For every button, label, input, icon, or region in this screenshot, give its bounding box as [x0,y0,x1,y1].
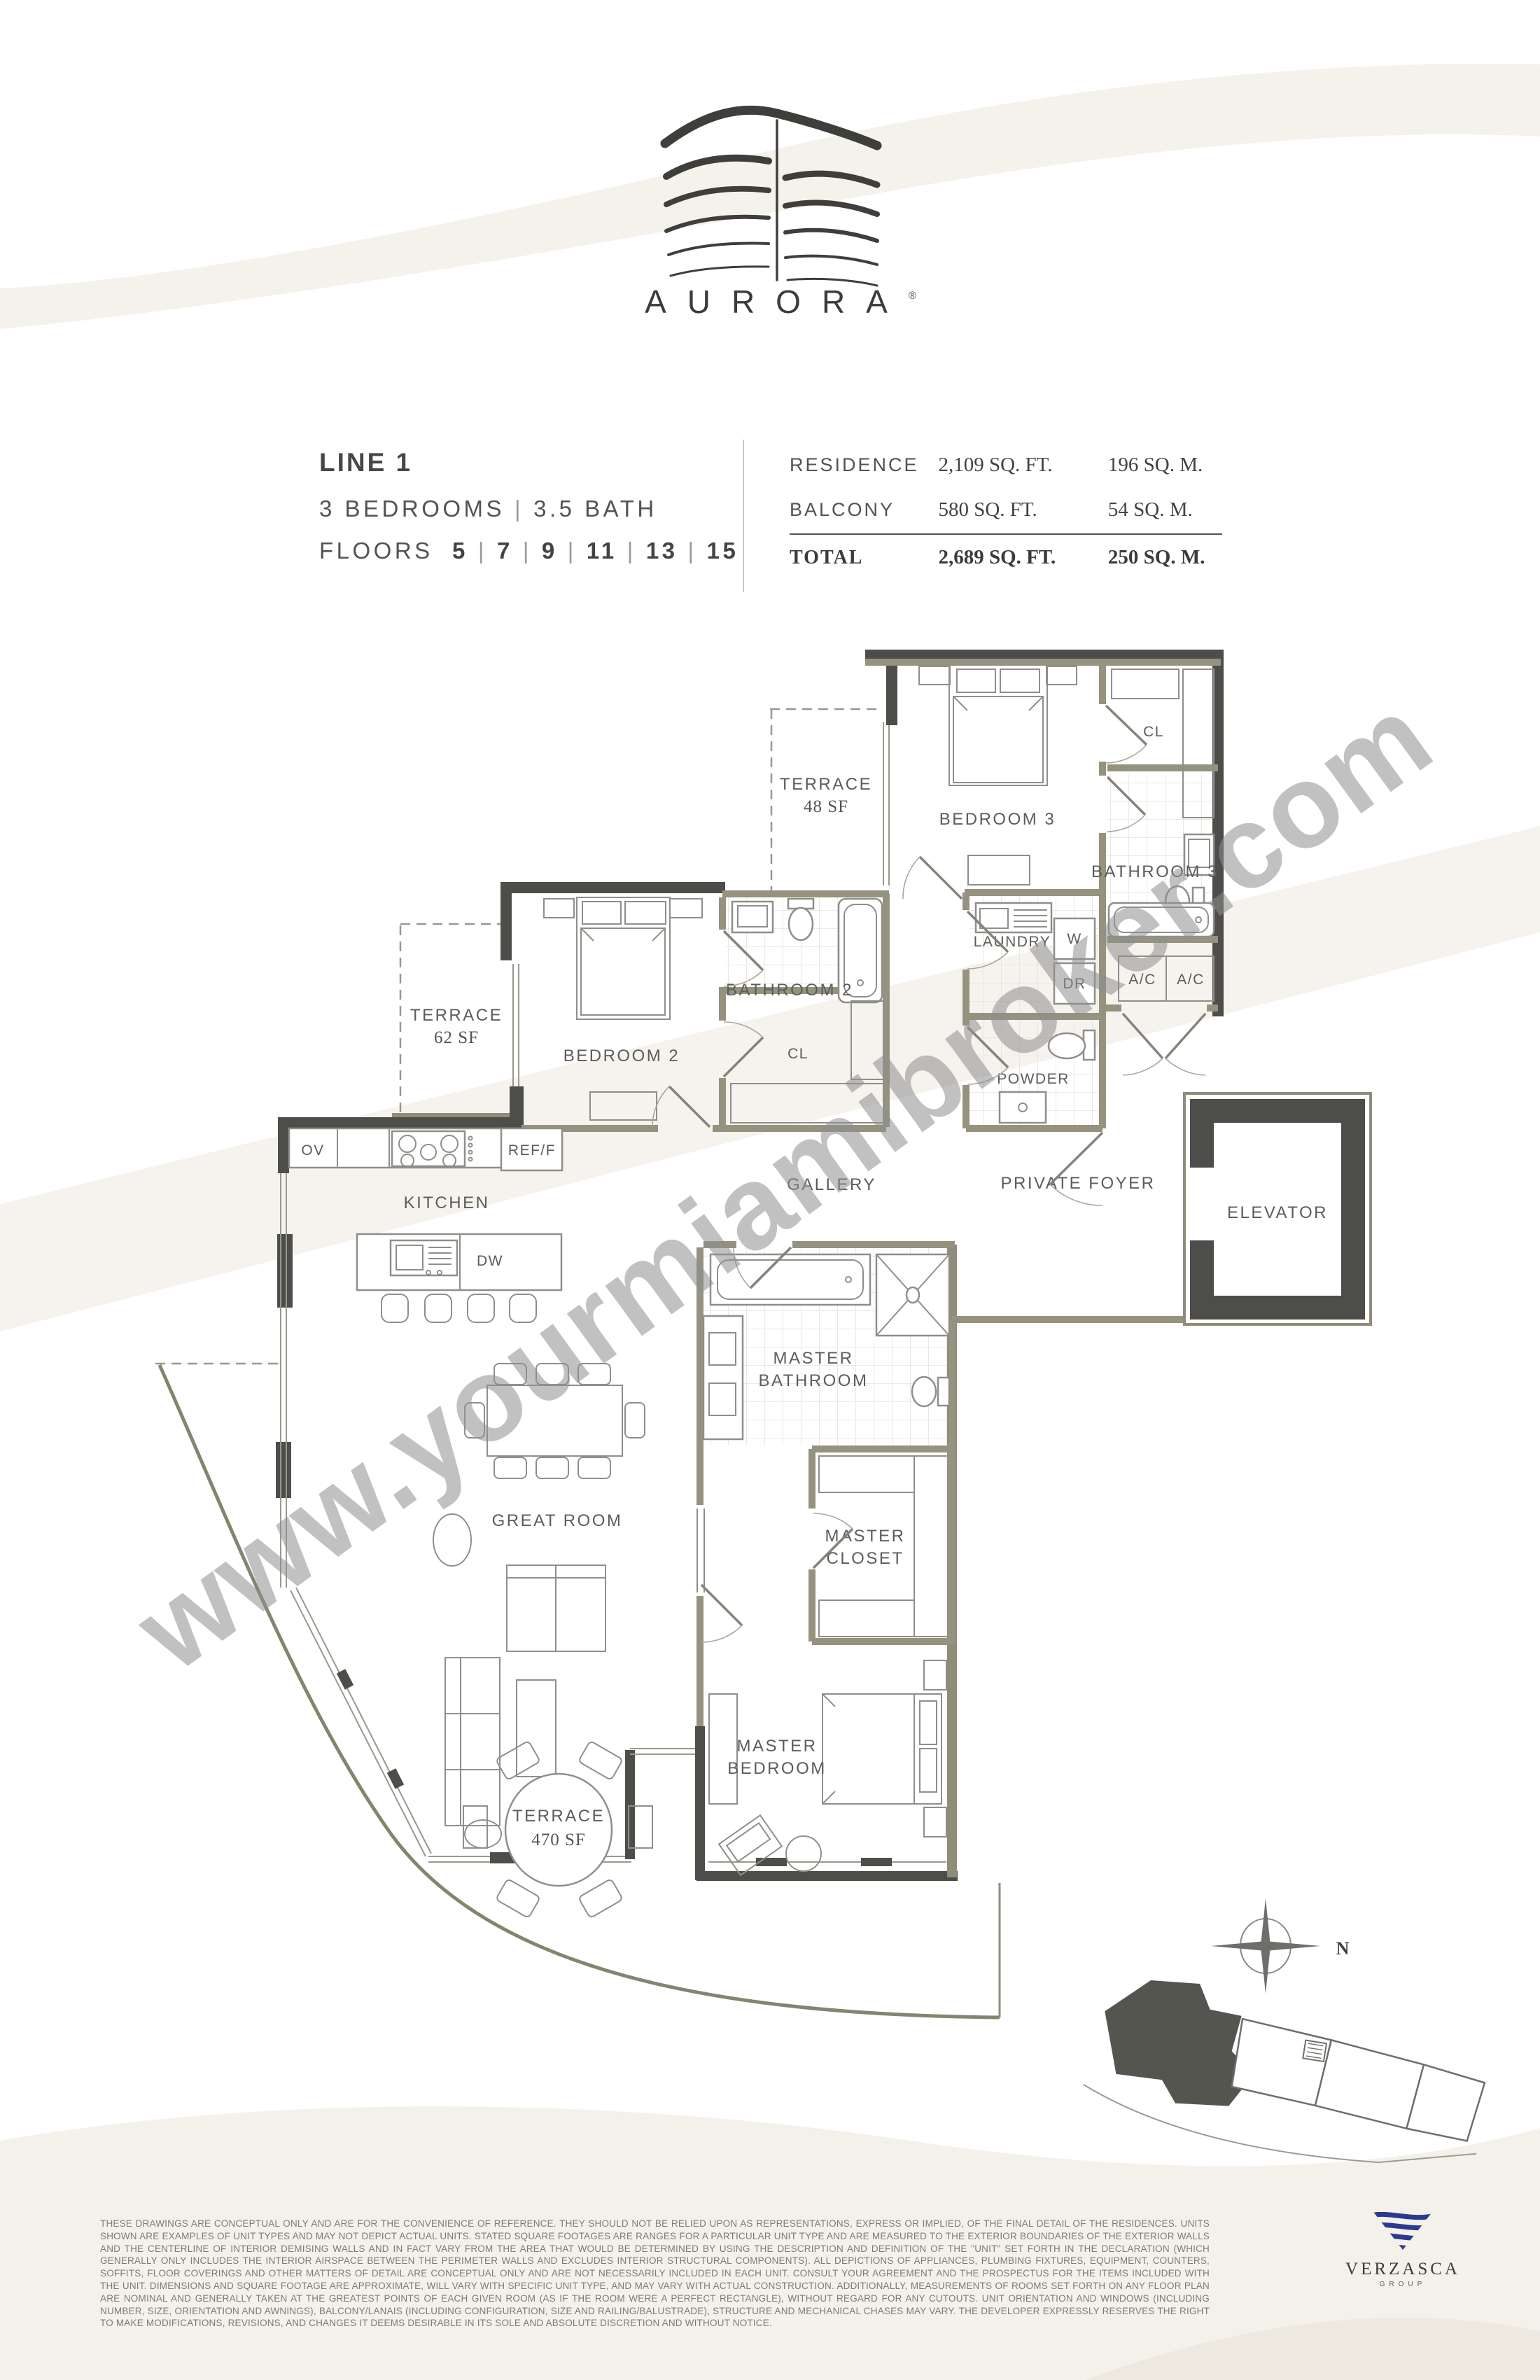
floor-number: 9 [542,538,558,563]
floors-label: FLOORS [319,538,433,563]
bathroom2-label: BATHROOM 2 [726,981,853,1000]
oven-label: OV [301,1142,324,1158]
unit-bath: 3.5 BATH [533,496,657,521]
private-foyer-label: PRIVATE FOYER [1001,1174,1156,1193]
row-sqft: 580 SQ. FT. [938,498,1105,521]
bedroom3-door-arc [903,857,920,899]
fridge-label: REF/F [508,1142,556,1158]
brand-registered-mark: ® [909,290,916,302]
terrace470-area: 470 SF [531,1830,586,1849]
floor-number: 7 [497,538,513,563]
terrace48-area: 48 SF [804,797,848,816]
room-bedroom3: BEDROOM 3 [919,665,1077,885]
terrace-48: TERRACE 48 SF [770,709,889,902]
bedroom3-label: BEDROOM 3 [939,810,1056,829]
separator: | [558,538,587,563]
row-sqft: 2,109 SQ. FT. [938,454,1105,477]
unit-line-label: LINE 1 [319,448,738,477]
floorplan-flyer-page: TERRACE 48 SF TERRACE 62 SF [0,0,1540,2380]
elevator-label: ELEVATOR [1227,1203,1328,1222]
great-room-label: GREAT ROOM [492,1511,623,1530]
master-bathroom-label-1: MASTER [773,1349,853,1368]
master-closet-label-2: CLOSET [826,1549,904,1568]
unit-floors: FLOORS 5|7|9|11|13|15 [319,538,738,564]
bedroom2-label: BEDROOM 2 [563,1046,680,1065]
row-sqm: 250 SQ. M. [1108,546,1205,569]
row-sqm: 54 SQ. M. [1108,498,1193,521]
table-row-balcony: BALCONY 580 SQ. FT. 54 SQ. M. [790,498,1193,521]
closet-top-label: CL [1143,724,1164,740]
table-row-residence: RESIDENCE 2,109 SQ. FT. 196 SQ. M. [790,454,1203,477]
row-label: TOTAL [790,547,935,569]
unit-configuration: 3 BEDROOMS|3.5 BATH [319,496,738,522]
compass-icon: N [1211,1898,1350,1994]
closet-bed2-label: CL [787,1046,808,1062]
terrace-dining-set: TERRACE 470 SF [463,1741,652,1918]
compass-north-label: N [1336,1938,1350,1959]
separator: | [513,538,542,563]
table-row-total: TOTAL 2,689 SQ. FT. 250 SQ. M. [790,546,1205,569]
floor-number: 13 [646,538,678,563]
separator: | [468,538,497,563]
brand-name: AURORA [645,283,909,320]
room-master-bedroom: MASTER BEDROOM [701,1585,946,1875]
master-bathroom-label-2: BATHROOM [759,1371,869,1390]
dishwasher-label: DW [477,1253,503,1269]
floor-number: 11 [587,538,617,563]
separator: | [505,496,533,521]
floor-number: 15 [707,538,739,563]
floor-number: 5 [452,538,468,563]
disclaimer-text: THESE DRAWINGS ARE CONCEPTUAL ONLY AND A… [100,2218,1210,2330]
room-elevator: ELEVATOR [1184,1093,1371,1324]
room-master-closet: MASTER CLOSET [813,1456,948,1637]
master-bedroom-label-1: MASTER [736,1737,817,1756]
separator: | [678,538,707,563]
keyplan-building-footprint [1078,1968,1496,2182]
kitchen-label: KITCHEN [404,1193,490,1212]
row-sqft: 2,689 SQ. FT. [938,546,1105,569]
row-label: BALCONY [790,499,935,521]
unit-bedrooms: 3 BEDROOMS [319,496,505,521]
header-divider [743,440,744,592]
bedroom3-door [920,857,962,899]
separator: | [617,538,646,563]
developer-group-label: GROUP [1319,2281,1487,2288]
row-sqm: 196 SQ. M. [1108,454,1203,477]
row-label: RESIDENCE [790,454,935,476]
table-rule [790,533,1222,535]
terrace48-label: TERRACE [780,775,872,794]
terrace62-area: 62 SF [434,1028,479,1047]
brand-wordmark: AURORA® [0,283,1540,321]
master-bedroom-label-2: BEDROOM [727,1759,827,1778]
terrace470-label: TERRACE [512,1807,605,1826]
terrace62-label: TERRACE [410,1006,503,1025]
unit-header: LINE 1 3 BEDROOMS|3.5 BATH FLOORS 5|7|9|… [319,448,738,564]
developer-name: VERZASCA [1319,2260,1487,2279]
